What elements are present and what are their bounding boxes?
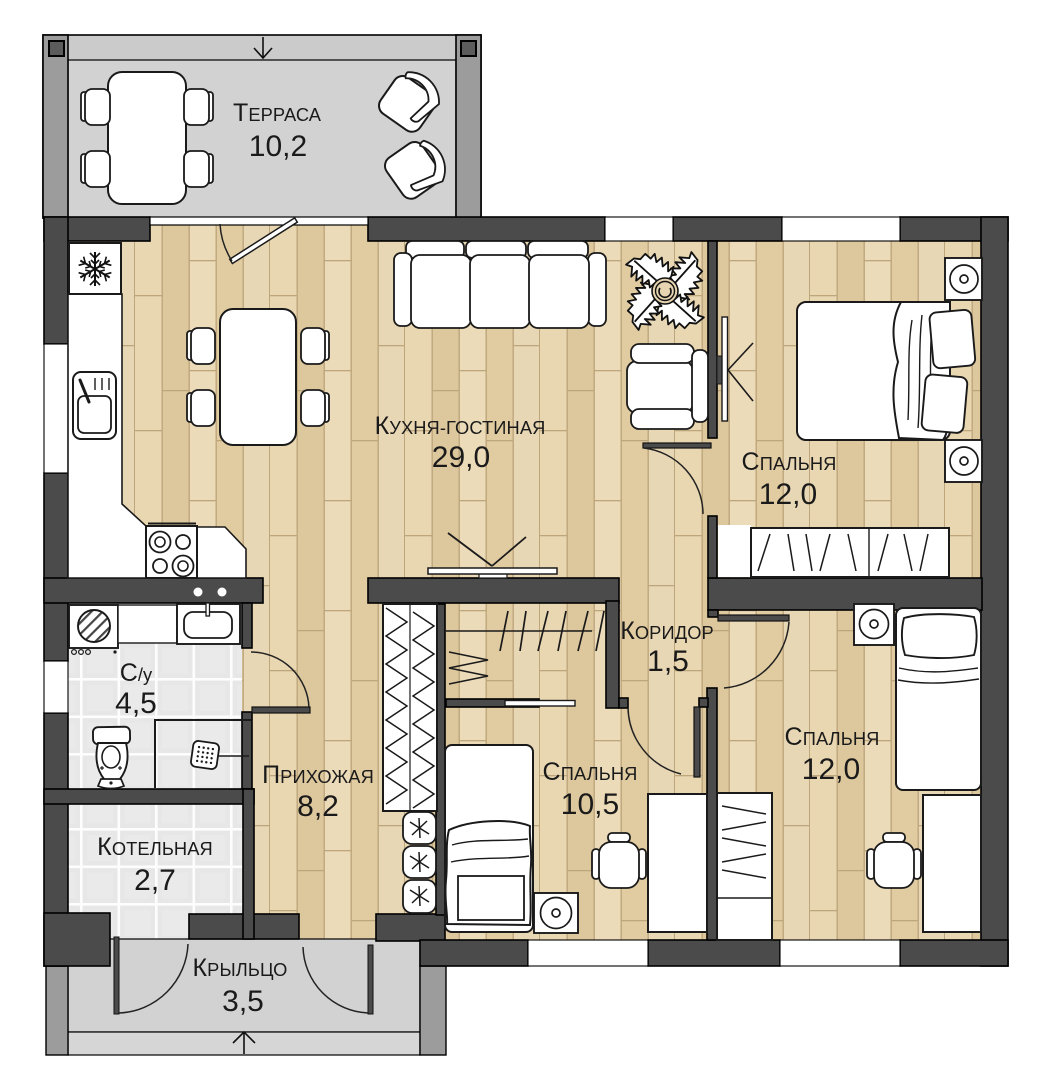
svg-text:С/у: С/у [120,659,153,687]
svg-text:СПАЛЬНЯ: СПАЛЬНЯ [742,448,837,476]
svg-text:КОРИДОР: КОРИДОР [620,617,714,645]
svg-text:12,0: 12,0 [759,478,817,511]
svg-text:2,7: 2,7 [134,864,176,897]
svg-text:12,0: 12,0 [802,753,860,786]
svg-text:ПРИХОЖАЯ: ПРИХОЖАЯ [262,761,374,789]
svg-text:КУХНЯ-ГОСТИНАЯ: КУХНЯ-ГОСТИНАЯ [375,412,546,440]
svg-text:1,5: 1,5 [647,645,689,678]
svg-text:4,5: 4,5 [115,687,157,720]
svg-text:10,5: 10,5 [561,788,619,821]
svg-text:ТЕРРАСА: ТЕРРАСА [233,99,322,127]
svg-text:8,2: 8,2 [297,790,339,823]
svg-text:29,0: 29,0 [432,441,490,474]
svg-text:10,2: 10,2 [249,130,307,163]
svg-text:СПАЛЬНЯ: СПАЛЬНЯ [543,758,638,786]
svg-text:КРЫЛЬЦО: КРЫЛЬЦО [193,954,288,982]
svg-text:3,5: 3,5 [222,985,264,1018]
svg-text:КОТЕЛЬНАЯ: КОТЕЛЬНАЯ [97,833,213,861]
svg-text:СПАЛЬНЯ: СПАЛЬНЯ [785,723,880,751]
